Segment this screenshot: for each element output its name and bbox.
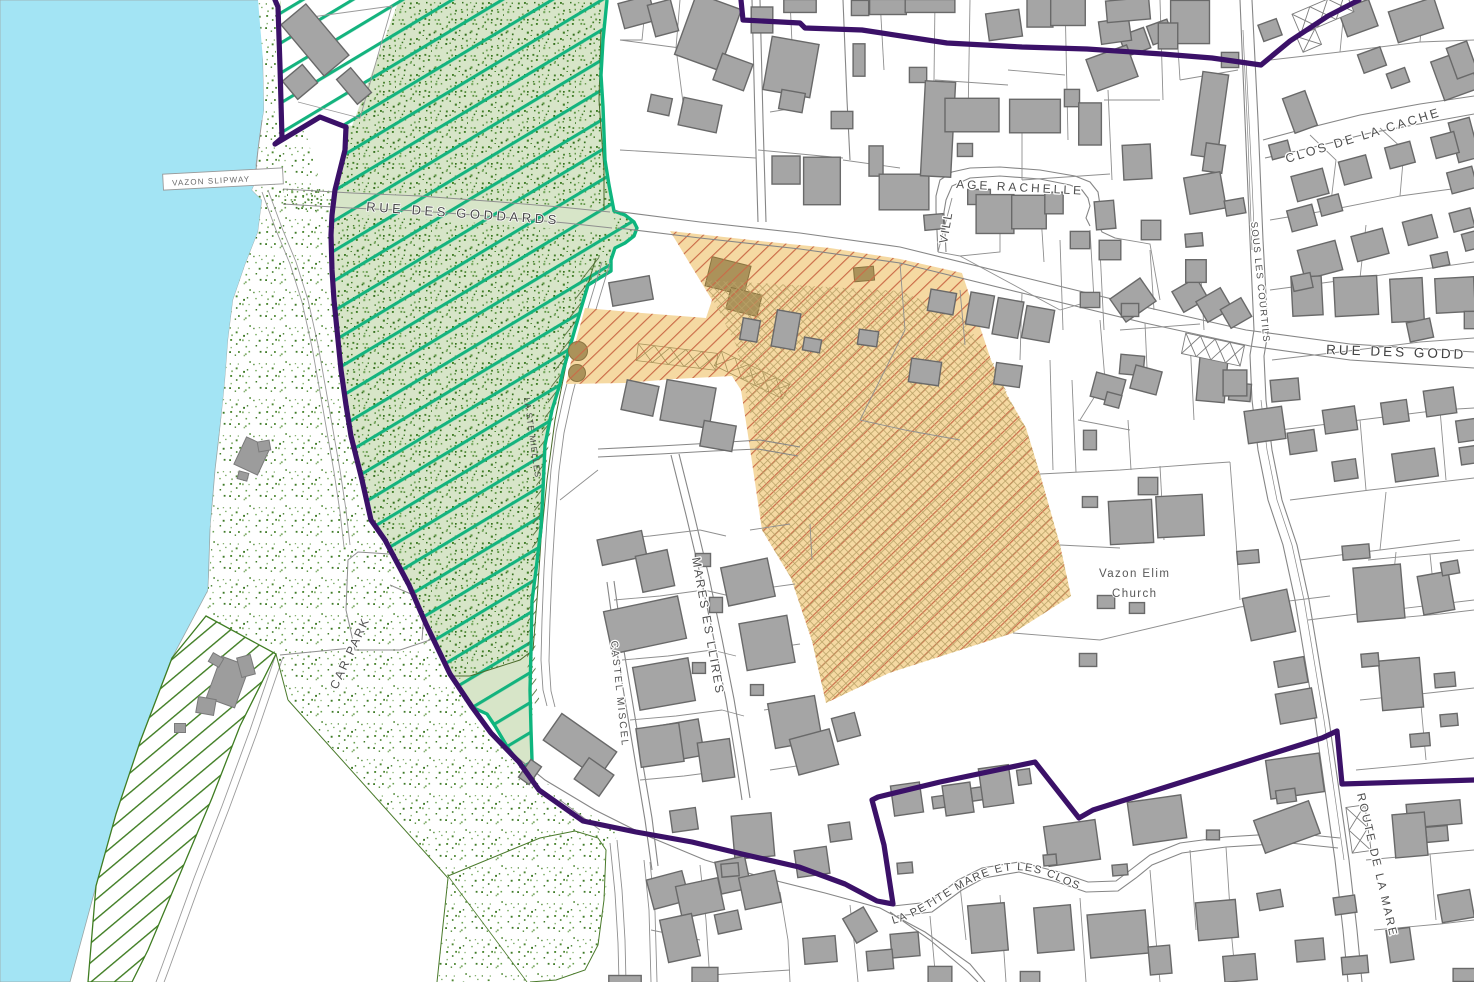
svg-text:Vazon Elim: Vazon Elim	[1099, 568, 1170, 580]
svg-text:Church: Church	[1112, 588, 1157, 600]
